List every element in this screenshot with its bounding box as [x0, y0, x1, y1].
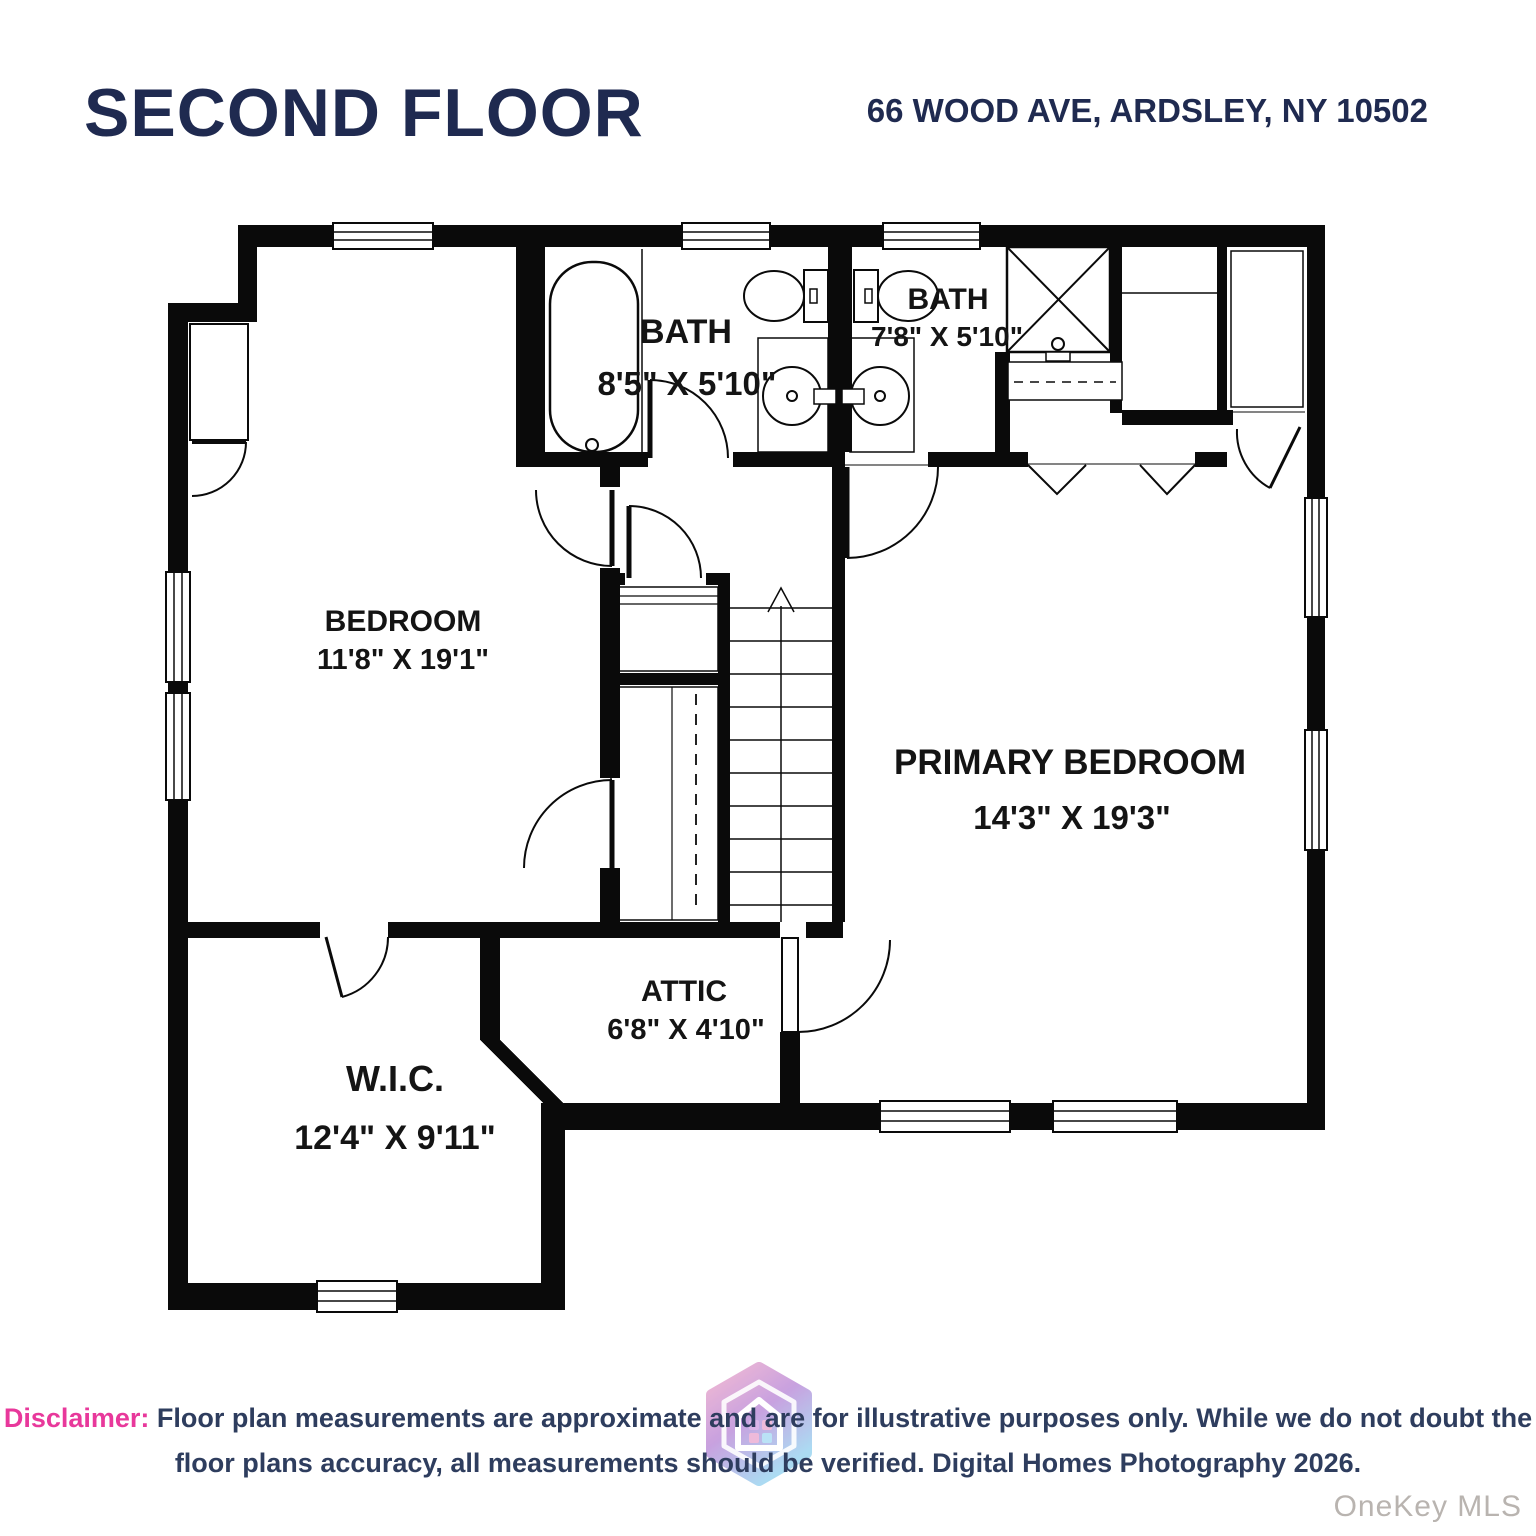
room-name: BATH: [640, 313, 732, 351]
window-icon: [1053, 1101, 1177, 1132]
window-icon: [1305, 730, 1327, 850]
disclaimer-text-1: Floor plan measurements are approximate …: [157, 1403, 1532, 1433]
wall-left: [168, 303, 188, 1310]
wall-closet-top-b: [706, 573, 718, 585]
window-icon: [333, 223, 433, 249]
door-icon: [326, 937, 388, 997]
room-dims: 11'8" X 19'1": [317, 644, 489, 676]
counter-dashed: [1008, 362, 1122, 400]
wall-hall-2: [733, 452, 845, 467]
wall-hall-4: [1195, 452, 1227, 467]
room-name: ATTIC: [641, 975, 727, 1008]
wall-closet-divider: [1217, 247, 1227, 413]
wall-attic-left: [480, 938, 500, 1040]
room-label-attic: ATTIC 6'8" X 4'10": [607, 975, 764, 1046]
disclaimer-line-1: Disclaimer: Floor plan measurements are …: [0, 1396, 1536, 1441]
room-dims: 6'8" X 4'10": [607, 1014, 764, 1046]
wall-divider-a: [168, 922, 320, 938]
stairs: [730, 588, 832, 922]
room-dims: 12'4" X 9'11": [294, 1119, 496, 1157]
bifold-door-icon: [1028, 465, 1195, 494]
wall-closet-left-b: [600, 868, 620, 922]
wall-hall-3: [928, 452, 1028, 467]
closet-outline: [1231, 251, 1303, 407]
disclaimer: Disclaimer: Floor plan measurements are …: [0, 1396, 1536, 1486]
door-icon: [629, 506, 701, 578]
door-icon: [192, 442, 246, 496]
linen-closet: [611, 587, 718, 671]
room-dims: 7'8" X 5'10": [871, 321, 1023, 352]
wall-closet-row: [1122, 410, 1233, 425]
window-icon: [682, 223, 770, 249]
sink-icon: [842, 367, 909, 425]
wall-right: [1307, 225, 1325, 1130]
wall-divider-c: [806, 922, 843, 938]
wall-closet-mid: [608, 673, 718, 685]
wall-primary-left: [780, 1032, 800, 1103]
bathtub-icon: [550, 262, 638, 456]
wall-attic-diagonal: [480, 1040, 563, 1103]
window-icon: [317, 1281, 397, 1312]
door-icon: [1237, 427, 1300, 488]
room-dims: 14'3" X 19'3": [973, 799, 1170, 836]
window-icon: [883, 223, 980, 249]
disclaimer-line-2: floor plans accuracy, all measurements s…: [0, 1441, 1536, 1486]
window-icon: [880, 1101, 1010, 1132]
room-name: W.I.C.: [346, 1058, 444, 1099]
door-icon: [536, 490, 612, 566]
room-dims: 8'5" X 5'10": [597, 365, 776, 402]
floor-plan: BEDROOM 11'8" X 19'1" BATH 8'5" X 5'10" …: [0, 0, 1536, 1536]
disclaimer-label: Disclaimer:: [4, 1403, 150, 1433]
tall-closet: [611, 687, 718, 920]
room-label-primary: PRIMARY BEDROOM 14'3" X 19'3": [894, 743, 1246, 836]
bedroom-closet: [190, 324, 248, 440]
room-name: BATH: [907, 283, 988, 316]
wall-wic-right: [541, 1103, 565, 1310]
room-label-wic: W.I.C. 12'4" X 9'11": [294, 1058, 496, 1157]
window-icon: [1305, 498, 1327, 617]
room-name: BEDROOM: [325, 605, 482, 638]
wall-divider-b: [388, 922, 780, 938]
wall-bath-divider: [828, 247, 852, 452]
mls-watermark: OneKey MLS: [1334, 1490, 1522, 1524]
wall-stairs-right: [832, 467, 845, 922]
window-icon: [166, 572, 190, 682]
page: SECOND FLOOR 66 WOOD AVE, ARDSLEY, NY 10…: [0, 0, 1536, 1536]
toilet-icon: [744, 270, 828, 322]
wall-closet-right: [718, 573, 730, 922]
room-label-bedroom: BEDROOM 11'8" X 19'1": [317, 605, 489, 676]
door-icon: [847, 467, 938, 558]
wall-hallv-a: [600, 467, 620, 487]
wall-bath1-left: [516, 247, 545, 452]
room-name: PRIMARY BEDROOM: [894, 743, 1246, 782]
window-icon: [166, 693, 190, 800]
door-icon: [782, 938, 890, 1032]
door-icon: [524, 780, 612, 868]
